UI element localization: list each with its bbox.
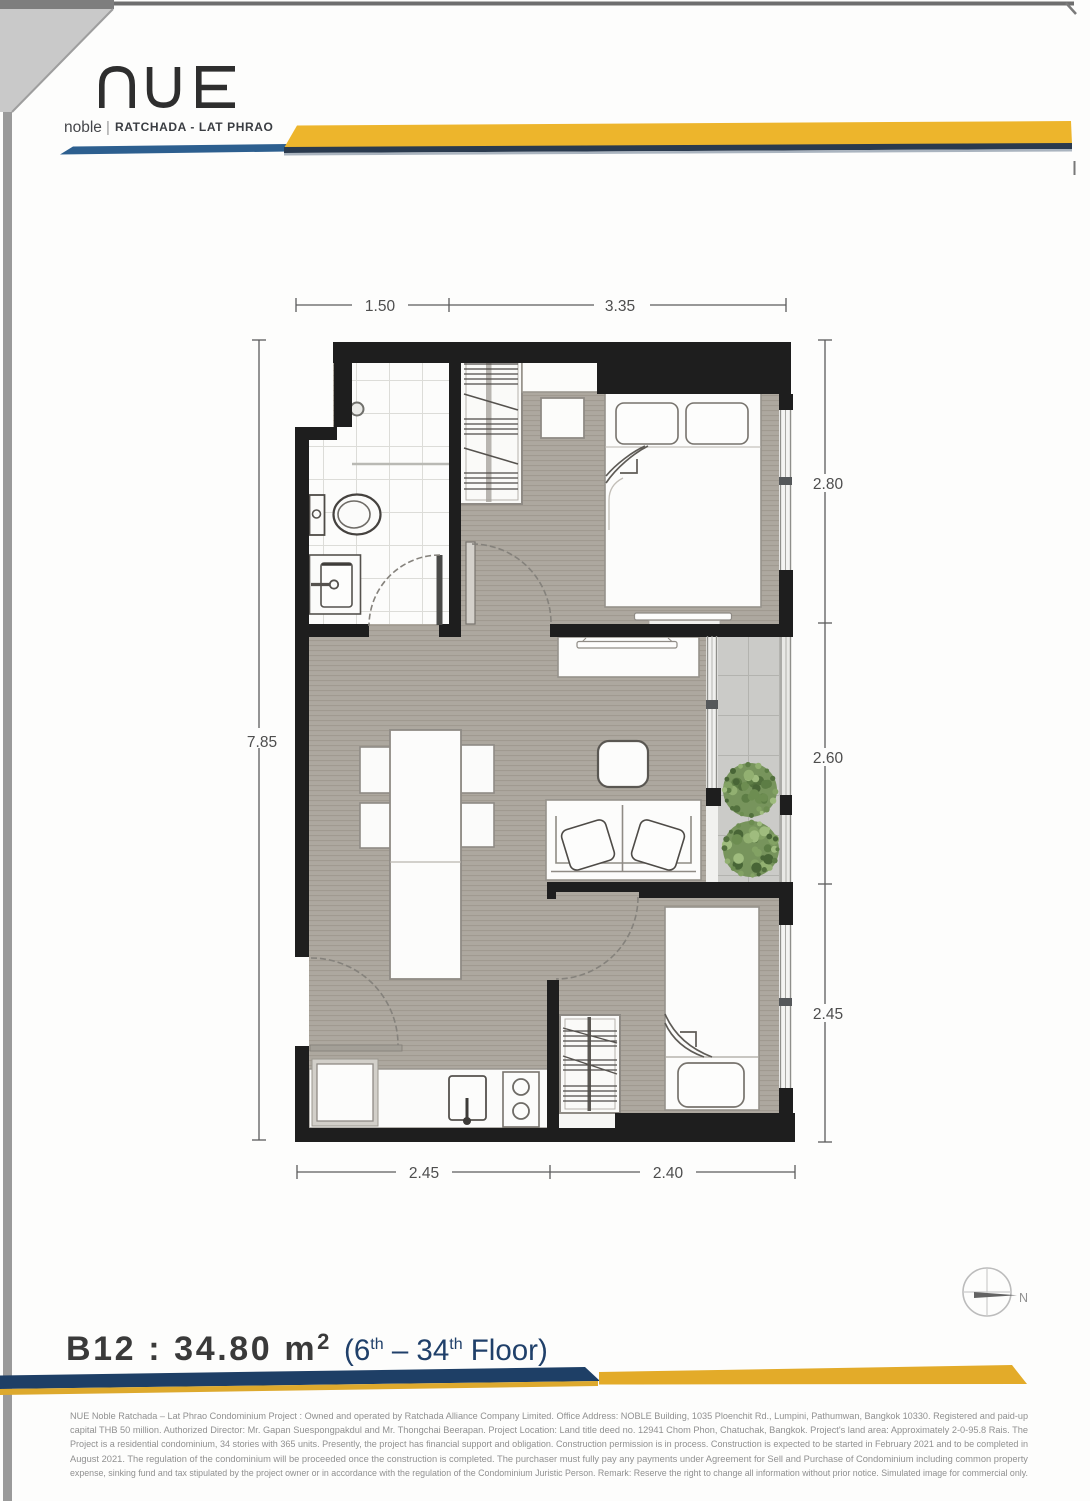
svg-text:2.60: 2.60 (813, 750, 844, 767)
svg-text:RATCHADA - LAT PHRAO: RATCHADA - LAT PHRAO (115, 120, 273, 134)
svg-text:7.85: 7.85 (247, 734, 277, 751)
svg-text:2.40: 2.40 (653, 1165, 684, 1182)
svg-text:noble: noble (64, 119, 102, 136)
svg-text:1.50: 1.50 (365, 298, 396, 315)
svg-text:|: | (106, 119, 110, 136)
svg-text:N: N (1019, 1291, 1028, 1305)
svg-text:2.45: 2.45 (813, 1006, 843, 1023)
svg-text:2.45: 2.45 (409, 1165, 439, 1182)
svg-text:3.35: 3.35 (605, 298, 635, 315)
svg-text:2.80: 2.80 (813, 476, 844, 493)
